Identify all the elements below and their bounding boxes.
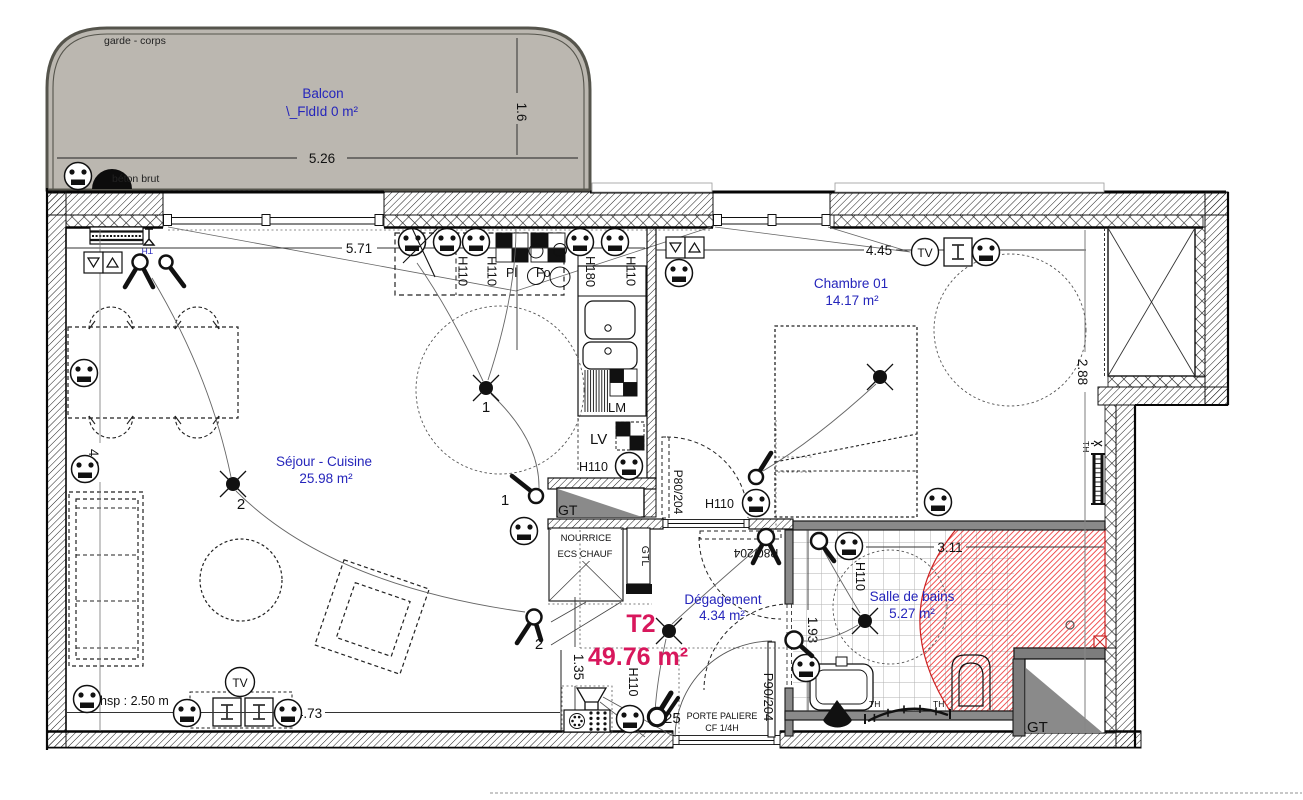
- svg-text:PORTE PALIERE: PORTE PALIERE: [687, 711, 758, 721]
- svg-text:TH: TH: [933, 699, 944, 709]
- svg-text:TV: TV: [232, 676, 247, 690]
- svg-text:4.34 m²: 4.34 m²: [699, 608, 745, 623]
- svg-text:5.26: 5.26: [309, 151, 335, 166]
- svg-text:P90/204: P90/204: [761, 673, 776, 721]
- svg-text:\_FldId 0 m²: \_FldId 0 m²: [286, 104, 359, 119]
- svg-text:TV: TV: [917, 246, 932, 260]
- svg-text:1.93: 1.93: [805, 617, 820, 643]
- svg-text:H110: H110: [853, 562, 867, 591]
- svg-text:1: 1: [482, 399, 490, 416]
- svg-text:GT: GT: [1027, 719, 1048, 736]
- svg-text:5.27 m²: 5.27 m²: [889, 606, 935, 621]
- svg-text:4.45: 4.45: [866, 243, 892, 258]
- svg-text:Dégagement: Dégagement: [684, 592, 762, 607]
- svg-text:Salle de bains: Salle de bains: [870, 589, 955, 604]
- svg-text:TH: TH: [869, 699, 880, 709]
- svg-text:Pl: Pl: [506, 266, 517, 280]
- svg-text:1.6: 1.6: [514, 103, 529, 122]
- svg-text:Balcon: Balcon: [302, 86, 343, 101]
- svg-text:GT: GT: [558, 502, 578, 518]
- svg-text:LV: LV: [590, 431, 607, 448]
- svg-text:garde - corps: garde - corps: [104, 35, 166, 47]
- svg-text:LM: LM: [608, 400, 626, 415]
- svg-text:2: 2: [237, 496, 245, 513]
- svg-text:H180: H180: [583, 256, 598, 287]
- svg-text:H110: H110: [705, 497, 734, 511]
- svg-text:P80/204: P80/204: [733, 546, 778, 560]
- svg-text:H110: H110: [579, 460, 608, 474]
- svg-text:25.98 m²: 25.98 m²: [299, 471, 353, 486]
- svg-text:Séjour - Cuisine: Séjour - Cuisine: [276, 454, 372, 469]
- svg-text:hsp : 2.50 m: hsp : 2.50 m: [100, 694, 169, 708]
- svg-text:NOURRICE: NOURRICE: [561, 533, 612, 544]
- svg-text:P80/204: P80/204: [671, 470, 685, 515]
- svg-text:1.35: 1.35: [571, 654, 586, 680]
- svg-text:3.11: 3.11: [937, 540, 962, 555]
- svg-text:béton brut: béton brut: [112, 173, 159, 185]
- svg-text:ECS CHAUF: ECS CHAUF: [558, 549, 613, 560]
- svg-text:Fo: Fo: [536, 266, 551, 280]
- svg-text:H110: H110: [456, 256, 471, 286]
- svg-text:H110: H110: [626, 668, 640, 697]
- svg-text:Chambre 01: Chambre 01: [814, 276, 888, 291]
- svg-text:H110: H110: [485, 256, 500, 286]
- svg-text:1: 1: [501, 492, 509, 509]
- svg-text:CF 1/4H: CF 1/4H: [705, 723, 739, 733]
- svg-text:25: 25: [664, 710, 681, 727]
- svg-text:5.71: 5.71: [346, 241, 372, 256]
- svg-text:TH: TH: [1081, 441, 1091, 452]
- svg-text:14.17 m²: 14.17 m²: [825, 293, 879, 308]
- svg-text:H110: H110: [624, 256, 639, 286]
- svg-text:2.88: 2.88: [1075, 359, 1090, 385]
- svg-text:2: 2: [535, 636, 543, 653]
- svg-text:GTL: GTL: [639, 546, 651, 567]
- svg-text:T2: T2: [626, 610, 655, 638]
